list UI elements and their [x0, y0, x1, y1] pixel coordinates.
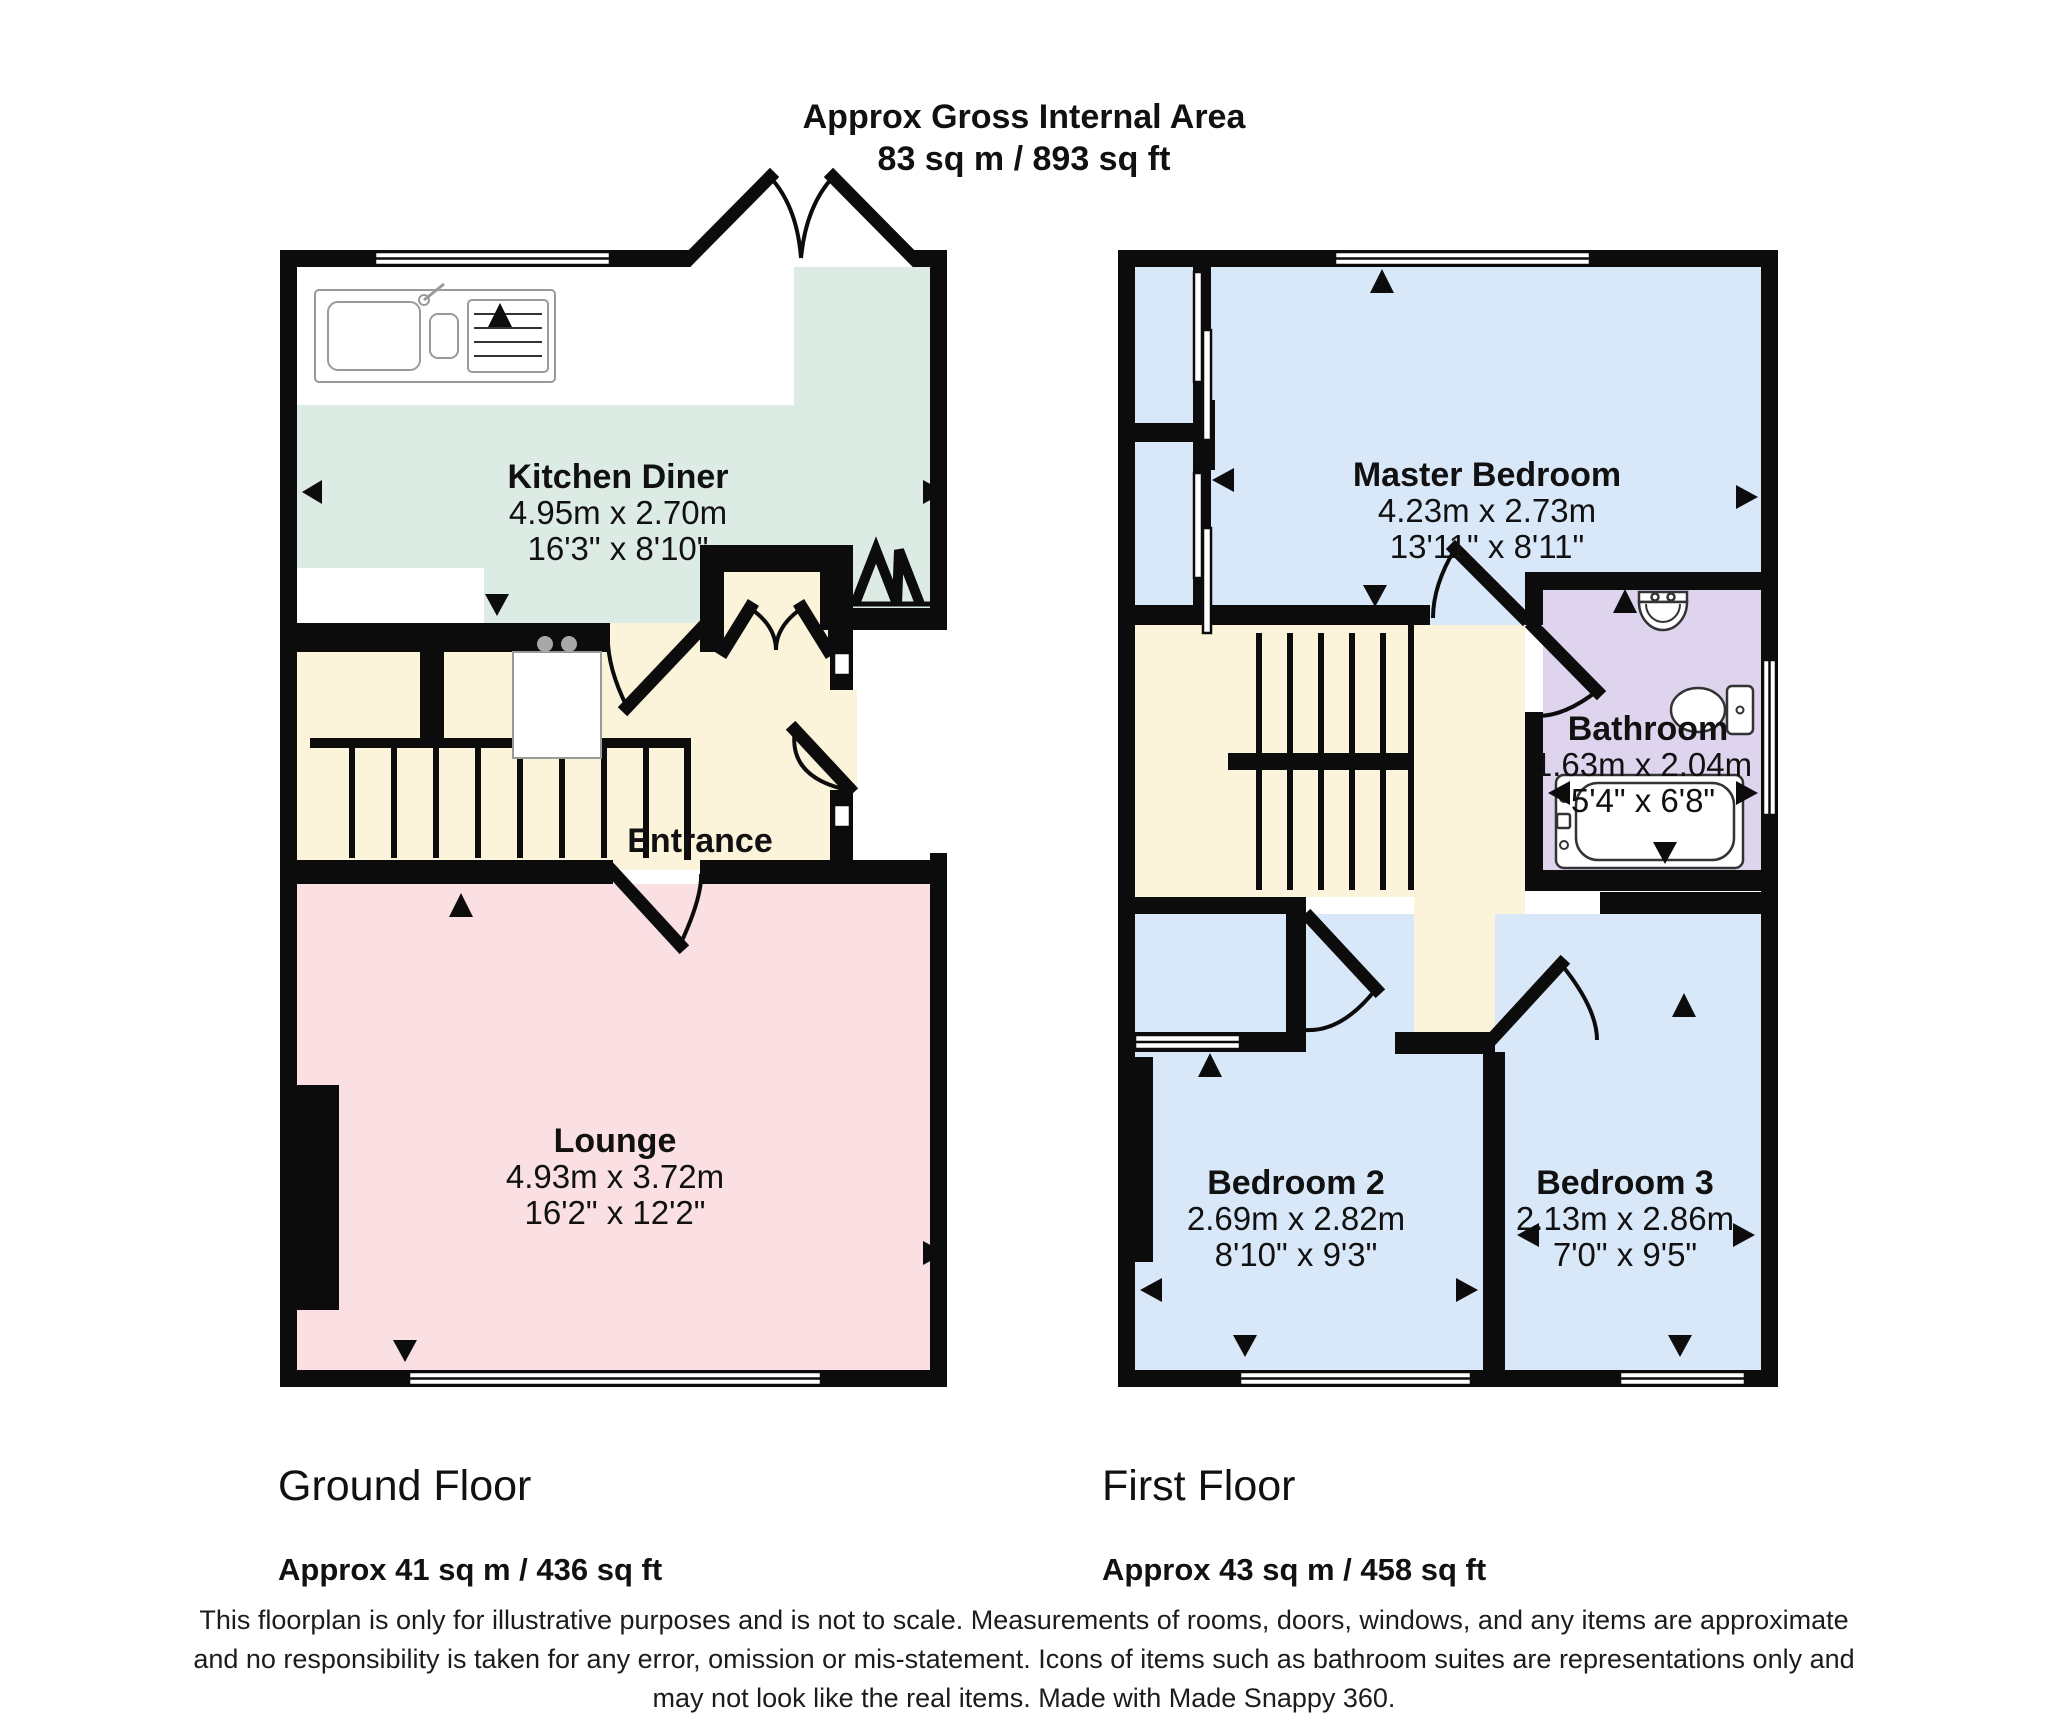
hall-lounge-wall-left	[280, 860, 613, 884]
bedroom3-top-wall	[1600, 892, 1761, 914]
bedroom2-alcove-window	[1135, 1035, 1240, 1049]
master-landing-wall	[1118, 605, 1430, 625]
bathroom-label: Bathroom	[1568, 710, 1729, 748]
bedroom2-chimney-breast	[1135, 1057, 1153, 1262]
corridor-end-wall	[1395, 1032, 1495, 1054]
wardrobe-divider	[1135, 423, 1193, 442]
bedroom3-label: Bedroom 3	[1536, 1164, 1714, 1202]
bathroom-metric: 1.63m x 2.04m	[1534, 746, 1752, 783]
master-window	[1335, 252, 1590, 265]
gf-right-wall-upper	[930, 250, 947, 630]
first-floor-plan: Master Bedroom 4.23m x 2.73m 13'11" x 8'…	[1118, 250, 1778, 1387]
landing-bedroom2-wall	[1118, 897, 1306, 914]
french-doors	[690, 177, 913, 258]
bathroom-top-wall	[1525, 572, 1761, 590]
disclaimer-line-2: and no responsibility is taken for any e…	[0, 1640, 2048, 1679]
bedroom3-window	[1620, 1372, 1745, 1385]
lounge-metric: 4.93m x 3.72m	[506, 1158, 724, 1195]
lounge-label: Lounge	[554, 1122, 677, 1160]
bedroom2-window	[1240, 1372, 1471, 1385]
front-door-sidelight-bottom	[834, 805, 850, 827]
bathroom-left-wall-lower	[1525, 712, 1543, 870]
entrance-label: Entrance	[627, 822, 773, 860]
kitchen-counter-left	[297, 568, 484, 623]
ground-floor-area: Approx 41 sq m / 436 sq ft	[278, 1552, 662, 1588]
ground-floor-plan: Kitchen Diner 4.95m x 2.70m 16'3" x 8'10…	[280, 177, 947, 1387]
disclaimer: This floorplan is only for illustrative …	[0, 1601, 2048, 1713]
bedroom2-label: Bedroom 2	[1207, 1164, 1385, 1202]
lounge-window	[409, 1372, 821, 1385]
bedroom2-bedroom3-wall	[1483, 1052, 1505, 1370]
kitchen-metric: 4.95m x 2.70m	[509, 494, 727, 531]
bedroom3-metric: 2.13m x 2.86m	[1516, 1200, 1734, 1237]
front-door-sidelight-top	[834, 653, 850, 675]
bedroom2-alcove-wall	[1286, 897, 1306, 1052]
bedroom2-metric: 2.69m x 2.82m	[1187, 1200, 1405, 1237]
bathroom-imperial: 5'4" x 6'8"	[1571, 782, 1715, 819]
floorplan-canvas: Kitchen Diner 4.95m x 2.70m 16'3" x 8'10…	[0, 0, 2048, 1713]
kitchen-sink-icon	[315, 284, 555, 382]
first-floor-title: First Floor	[1102, 1462, 1296, 1511]
kitchen-hall-wall-right	[820, 608, 947, 630]
bedroom2-imperial: 8'10" x 9'3"	[1215, 1236, 1378, 1273]
gf-right-wall-lower	[930, 853, 947, 1387]
master-floor	[1135, 267, 1761, 625]
bifold-jamb	[820, 560, 853, 608]
gross-area-title: Approx Gross Internal Area	[0, 96, 2048, 138]
bedroom3-imperial: 7'0" x 9'5"	[1553, 1236, 1697, 1273]
gross-area-value: 83 sq m / 893 sq ft	[0, 138, 2048, 180]
hall-lounge-wall-right	[700, 860, 947, 884]
floorplan-page: Approx Gross Internal Area 83 sq m / 893…	[0, 0, 2048, 1713]
bathroom-window	[1763, 660, 1776, 815]
master-imperial: 13'11" x 8'11"	[1390, 528, 1584, 565]
bedroom3-floor	[1495, 914, 1761, 1370]
closet-wall	[420, 648, 444, 748]
master-label: Master Bedroom	[1353, 456, 1621, 494]
bathroom-bottom-wall	[1525, 870, 1761, 891]
appliance-unit	[513, 636, 601, 758]
disclaimer-line-1: This floorplan is only for illustrative …	[0, 1601, 2048, 1640]
disclaimer-line-3: may not look like the real items. Made w…	[0, 1679, 2048, 1713]
kitchen-hall-wall	[280, 623, 610, 652]
kitchen-imperial: 16'3" x 8'10"	[528, 530, 709, 567]
bedroom2-alcove-floor	[1135, 914, 1286, 1032]
master-metric: 4.23m x 2.73m	[1378, 492, 1596, 529]
lounge-chimney-breast	[297, 1085, 339, 1310]
ff-left-wall	[1118, 250, 1135, 1387]
gross-area-header: Approx Gross Internal Area 83 sq m / 893…	[0, 96, 2048, 180]
lounge-imperial: 16'2" x 12'2"	[525, 1194, 706, 1231]
ff-right-wall	[1761, 250, 1778, 1387]
first-floor-area: Approx 43 sq m / 458 sq ft	[1102, 1552, 1486, 1588]
kitchen-window	[375, 252, 610, 265]
gf-left-wall	[280, 250, 297, 1387]
ground-floor-title: Ground Floor	[278, 1462, 531, 1511]
kitchen-label: Kitchen Diner	[507, 458, 728, 496]
